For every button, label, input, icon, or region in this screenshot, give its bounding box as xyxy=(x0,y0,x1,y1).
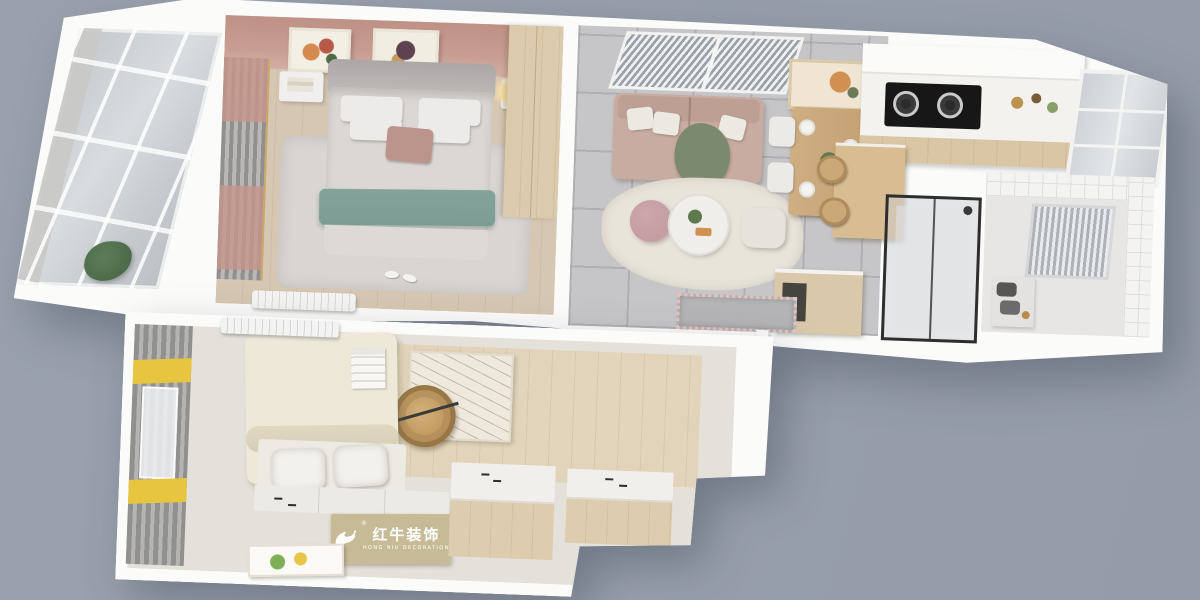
bench-cushion xyxy=(332,443,389,488)
shower-head xyxy=(963,206,972,215)
white-ottoman xyxy=(741,207,786,249)
yellow-curtain-band xyxy=(128,478,187,504)
window-sheer xyxy=(139,386,179,479)
toiletry-jar xyxy=(1022,311,1030,319)
leaning-canvas-art xyxy=(248,544,344,577)
master-curtain-pink-panel xyxy=(217,185,264,270)
cabinet-front xyxy=(448,500,554,560)
yellow-curtain-band xyxy=(133,358,192,384)
chair-frame xyxy=(391,402,459,424)
bar-stool xyxy=(816,155,847,184)
storage-cabinet xyxy=(448,462,556,560)
cabinet-top xyxy=(450,462,555,504)
storage-cabinet xyxy=(565,469,674,547)
dining-chair-white xyxy=(768,116,795,147)
master-bedroom xyxy=(216,15,564,315)
towel xyxy=(1000,300,1020,315)
window-mullion xyxy=(701,37,722,89)
accent-pillow xyxy=(385,126,434,164)
lower-unit-slab: ® 红牛装饰 HONG NIU DECORATION xyxy=(115,312,777,600)
window-mullion xyxy=(1110,75,1128,183)
second-bedroom-curtains xyxy=(126,324,193,566)
magazine xyxy=(351,348,386,388)
teal-throw-blanket xyxy=(319,189,495,227)
bathroom-shelf xyxy=(991,276,1035,327)
brand-name-english: HONG NIU DECORATION xyxy=(363,545,450,551)
towel xyxy=(996,282,1016,297)
bathroom-window-blind xyxy=(1024,203,1116,280)
kitchen-window xyxy=(1064,69,1174,188)
shower-room xyxy=(881,194,982,343)
master-wardrobe xyxy=(503,25,564,219)
gas-cooktop xyxy=(884,82,981,129)
bathroom-tile-wall xyxy=(1123,177,1155,338)
master-bed xyxy=(321,59,497,285)
upper-apartment-unit xyxy=(18,12,1168,360)
master-curtain-pink-panel xyxy=(222,57,268,122)
master-ac-unit xyxy=(252,290,357,312)
bed-foot xyxy=(323,225,488,261)
place-setting xyxy=(799,181,816,198)
wardrobe-door-seam xyxy=(530,26,538,218)
bathroom xyxy=(981,172,1154,338)
living-window-blinds xyxy=(608,31,805,95)
balcony xyxy=(16,28,222,289)
bar-stool xyxy=(819,197,850,226)
sofa xyxy=(611,93,764,184)
cooktop-burner xyxy=(937,92,964,119)
table-book xyxy=(695,228,711,237)
brand-name-chinese: 红牛装饰 xyxy=(372,527,440,544)
registered-mark: ® xyxy=(361,520,367,527)
cabinet-front xyxy=(565,499,673,547)
watermark-plaque: ® 红牛装饰 HONG NIU DECORATION xyxy=(331,514,451,564)
nightstand-left xyxy=(279,71,324,103)
cooktop-burner xyxy=(893,90,920,117)
dining-chair-white xyxy=(767,162,794,193)
floorplan-render: ® 红牛装饰 HONG NIU DECORATION xyxy=(0,0,1200,600)
place-setting xyxy=(799,119,816,136)
nightstand-books xyxy=(287,77,313,92)
slippers xyxy=(384,271,420,286)
sofa-cushion xyxy=(652,111,680,136)
lower-apartment-unit: ® 红牛装饰 HONG NIU DECORATION xyxy=(120,324,772,592)
master-curtains xyxy=(217,57,269,280)
kitchen-upper-cabinets xyxy=(862,43,1085,81)
sofa-cushion xyxy=(626,106,654,131)
table-plant xyxy=(688,209,702,223)
